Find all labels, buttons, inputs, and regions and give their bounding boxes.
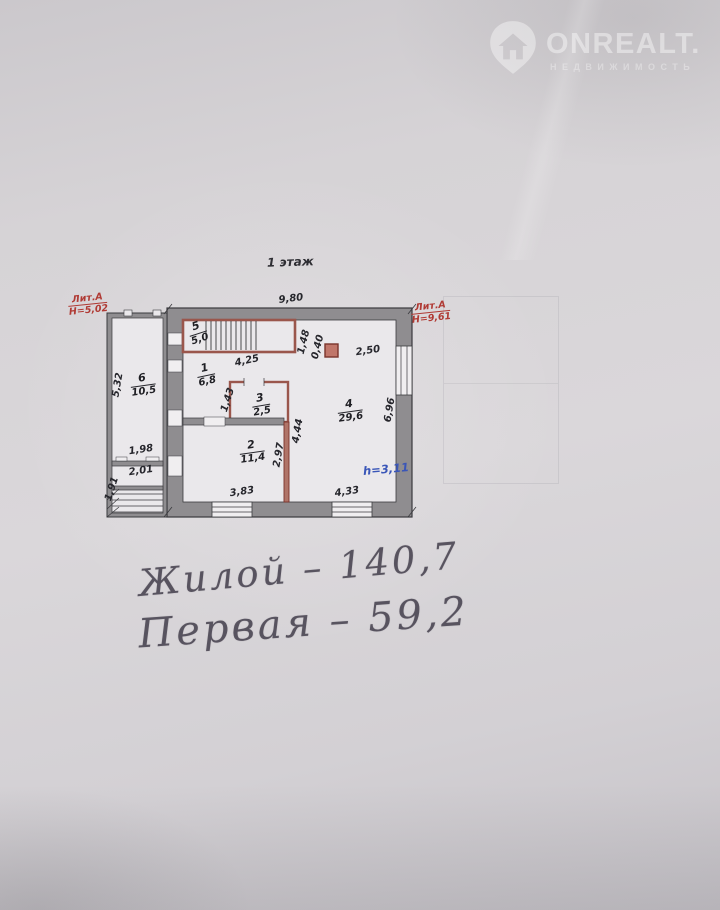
room-label-2: 2 11,4 [238, 438, 266, 467]
faint-adjacent-line [444, 383, 558, 384]
window-bottom-left [212, 502, 252, 517]
chimney [325, 344, 338, 357]
paper-crease [0, 700, 720, 910]
lit-label-right: Лит.А Н=9,61 [410, 299, 452, 327]
watermark-subtitle: НЕДВИЖИМОСТЬ [550, 62, 695, 72]
partition-room2-room4 [284, 422, 289, 502]
floor-title: 1 этаж [267, 254, 314, 270]
watermark-onrealt: ONREALT. НЕДВИЖИМОСТЬ [486, 16, 716, 80]
faint-adjacent-outline [443, 296, 559, 484]
window-bottom-right [332, 502, 372, 517]
window-right-wall [396, 346, 412, 395]
lit-label-left: Лит.А Н=5,02 [67, 291, 109, 319]
room-label-4: 4 29,6 [336, 397, 364, 426]
room-label-6: 6 10,5 [129, 371, 157, 400]
photographed-floorplan-page: ONREALT. НЕДВИЖИМОСТЬ 1 этаж [0, 0, 720, 910]
house-pin-icon [486, 18, 540, 76]
watermark-brand: ONREALT. [546, 28, 701, 61]
partition-room1-room2 [183, 417, 284, 426]
